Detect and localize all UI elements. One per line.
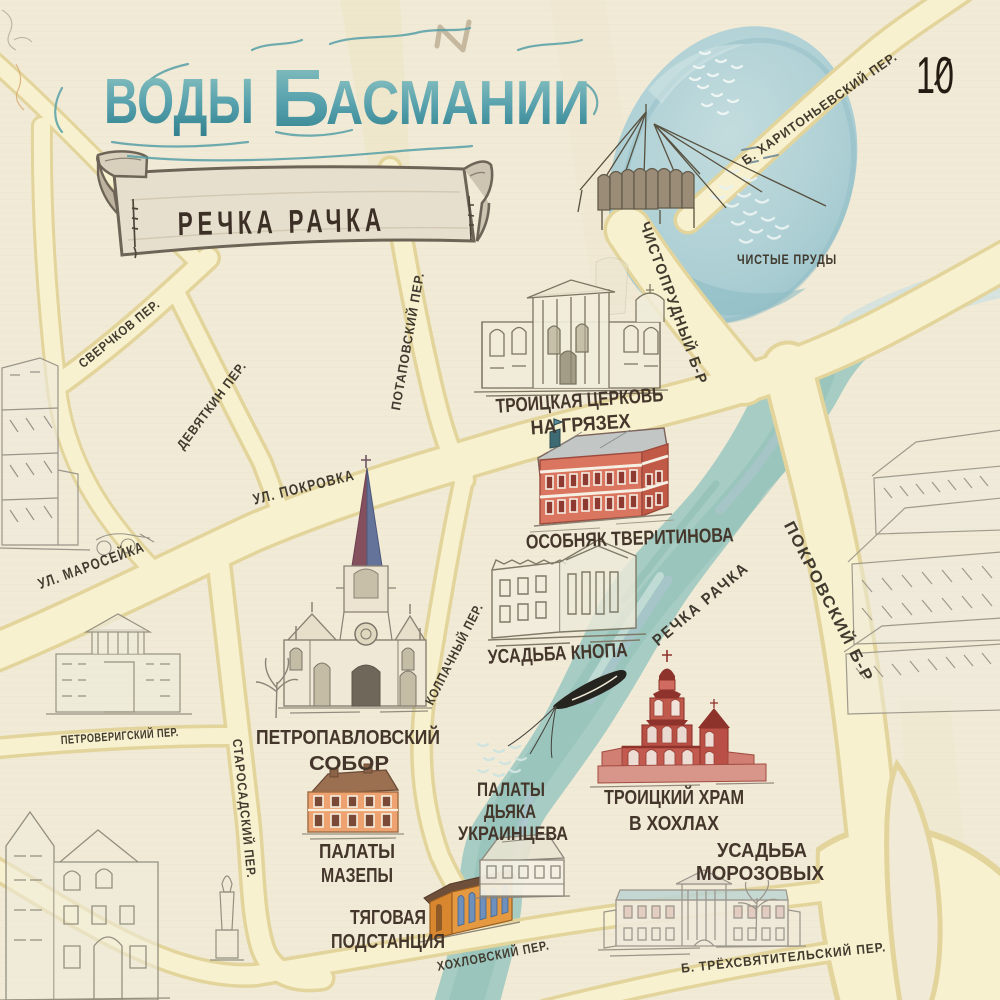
svg-text:ВОДЫ: ВОДЫ [104, 65, 254, 137]
svg-text:СОБОР: СОБОР [309, 753, 389, 775]
svg-text:УСАДЬБА: УСАДЬБА [717, 840, 807, 862]
svg-text:ДЬЯКА: ДЬЯКА [484, 802, 536, 823]
svg-text:ПАЛАТЫ: ПАЛАТЫ [477, 780, 545, 801]
svg-text:Б: Б [271, 53, 330, 144]
svg-text:УКРАИНЦЕВА: УКРАИНЦЕВА [458, 824, 568, 845]
svg-text:АСМАНИИ: АСМАНИИ [326, 69, 590, 138]
svg-text:ТРОИЦКИЙ ХРАМ: ТРОИЦКИЙ ХРАМ [604, 785, 744, 809]
svg-text:10: 10 [916, 47, 954, 105]
svg-text:ТЯГОВАЯ: ТЯГОВАЯ [350, 907, 426, 929]
svg-text:ПАЛАТЫ: ПАЛАТЫ [319, 841, 395, 863]
svg-text:ПОДСТАНЦИЯ: ПОДСТАНЦИЯ [331, 931, 445, 953]
svg-text:МАЗЕПЫ: МАЗЕПЫ [321, 865, 393, 887]
svg-text:РЕЧКА РАЧКА: РЕЧКА РАЧКА [177, 201, 386, 242]
svg-text:МОРОЗОВЫХ: МОРОЗОВЫХ [696, 863, 825, 885]
svg-text:ЧИСТЫЕ ПРУДЫ: ЧИСТЫЕ ПРУДЫ [737, 252, 837, 267]
svg-text:В ХОХЛАХ: В ХОХЛАХ [629, 813, 720, 835]
svg-text:ПЕТРОПАВЛОВСКИЙ: ПЕТРОПАВЛОВСКИЙ [256, 725, 440, 749]
